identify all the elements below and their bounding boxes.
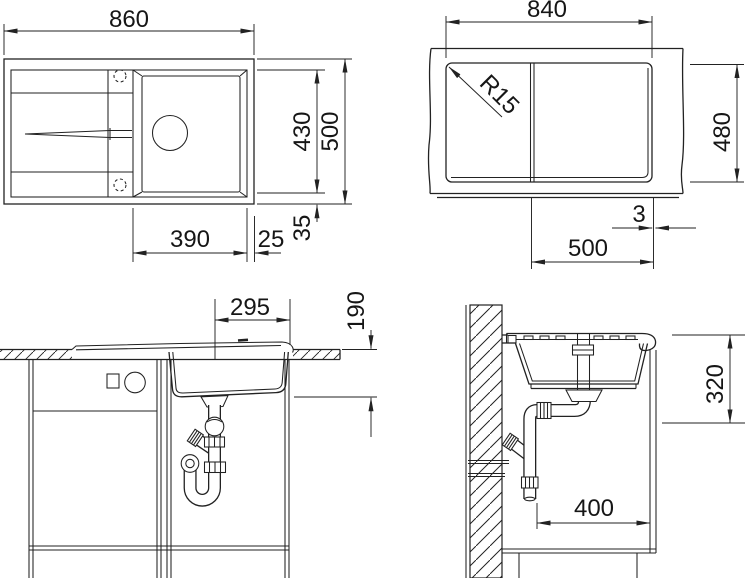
coupling-nut-lower bbox=[205, 462, 226, 473]
dim-bowl-height: 190 bbox=[343, 291, 370, 331]
pipe-open-end bbox=[525, 497, 535, 501]
dim-plan-width: 860 bbox=[109, 6, 149, 33]
cabinet-symbol-circle bbox=[125, 372, 146, 393]
coupling-vertical bbox=[522, 477, 539, 488]
wall bbox=[466, 305, 502, 578]
sink-profile-front bbox=[72, 340, 293, 353]
tap-hole-section bbox=[238, 340, 248, 341]
bowl-plan bbox=[133, 70, 247, 197]
drain-flange-side bbox=[566, 390, 602, 402]
plan-dimensions: 860 430 500 35 390 25 bbox=[4, 6, 352, 262]
tap-hole-bottom bbox=[114, 179, 126, 191]
cutout-view: R15 840 480 3 500 bbox=[428, 0, 744, 269]
cutout-dimensions: 840 480 3 500 bbox=[446, 0, 744, 269]
dim-cutout-depth: 480 bbox=[709, 112, 736, 152]
dim-corner-radius: R15 bbox=[474, 70, 524, 120]
tap-hole-top bbox=[114, 70, 126, 82]
dim-cutout-width: 840 bbox=[527, 0, 567, 23]
dim-edge-gap: 3 bbox=[632, 201, 645, 228]
drain-hole bbox=[153, 116, 188, 151]
dim-bowl-section: 500 bbox=[568, 235, 608, 262]
cabinet-symbol-square bbox=[107, 374, 119, 388]
drain-trap-front bbox=[181, 396, 228, 501]
dim-wall-clearance: 400 bbox=[574, 495, 614, 522]
coupling-horizontal bbox=[537, 403, 551, 419]
plan-view: 860 430 500 35 390 25 bbox=[4, 6, 352, 262]
worktop-outline bbox=[428, 49, 683, 198]
dim-plan-front-gap: 35 bbox=[289, 215, 316, 242]
technical-drawing-page: 860 430 500 35 390 25 bbox=[0, 0, 750, 578]
sink-outer-edge bbox=[4, 59, 254, 204]
drainboard-groove bbox=[25, 128, 132, 140]
dim-plan-side-gap: 25 bbox=[258, 226, 285, 253]
dim-plan-depth: 500 bbox=[317, 111, 344, 151]
front-section-view: 295 190 bbox=[0, 291, 377, 578]
front-dimensions: 295 190 bbox=[215, 291, 377, 437]
coupling-nut-upper bbox=[205, 437, 225, 447]
technical-drawing: 860 430 500 35 390 25 bbox=[0, 0, 750, 578]
cabinet-front bbox=[29, 360, 289, 578]
dim-plan-bowl-depth: 430 bbox=[289, 111, 316, 151]
bowl-section-front bbox=[169, 352, 288, 397]
trap-cleanout-cap bbox=[181, 455, 199, 473]
side-section-view: 320 400 bbox=[466, 305, 745, 578]
cutout-edge bbox=[446, 63, 652, 182]
dim-plan-bowl-width: 390 bbox=[170, 226, 210, 253]
bowl-section-side bbox=[516, 334, 648, 391]
dim-drain-offset: 295 bbox=[230, 294, 270, 321]
side-dimensions: 320 400 bbox=[537, 335, 745, 529]
dim-mounting-depth: 320 bbox=[702, 364, 729, 404]
radius-callout: R15 bbox=[449, 67, 524, 120]
